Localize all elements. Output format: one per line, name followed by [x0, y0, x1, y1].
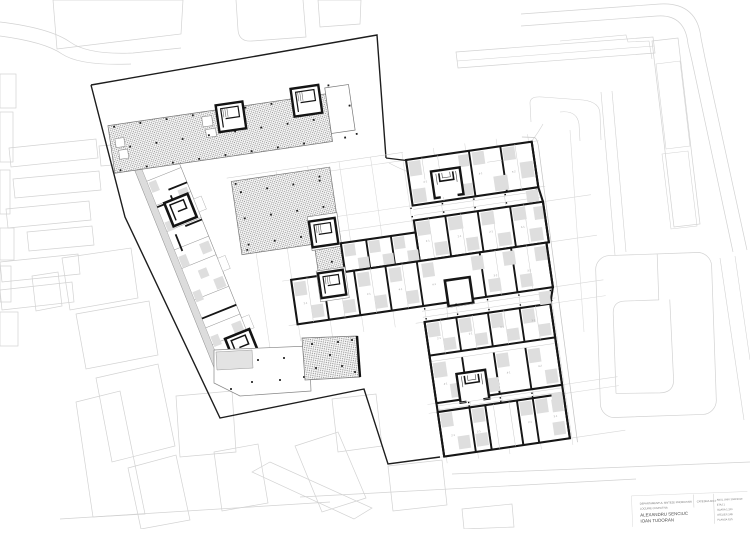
- svg-text:ETAJ 1: ETAJ 1: [717, 503, 726, 506]
- svg-text:PLANSA 02/5: PLANSA 02/5: [717, 518, 733, 522]
- svg-text:ATELIER 24B: ATELIER 24B: [717, 513, 733, 517]
- svg-text:SCARA 1:200: SCARA 1:200: [717, 508, 733, 512]
- svg-text:CATEDRA AN 3: CATEDRA AN 3: [697, 499, 717, 504]
